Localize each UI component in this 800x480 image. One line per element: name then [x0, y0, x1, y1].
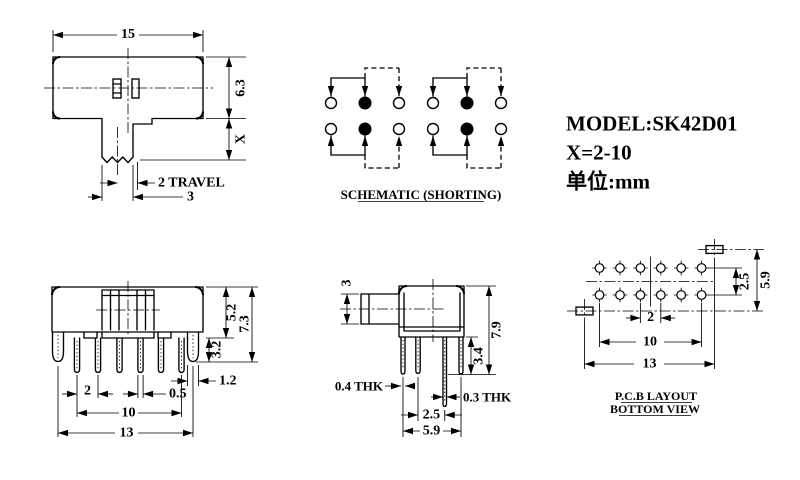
side-view: 3 7.9 3.4 0.4 THK 0.3 THK 2.5 5.9: [335, 279, 512, 439]
dim-top-width: 15: [121, 27, 135, 42]
dim-side-knob-height: 3: [340, 280, 355, 287]
switch-drawing: 15 6.3 X 2 TRAVEL 3: [0, 0, 800, 480]
dim-top-knob: 3: [187, 190, 194, 205]
actuator-slot: [113, 79, 139, 98]
dim-front-span: 10: [122, 406, 136, 421]
front-view-body: [52, 281, 203, 372]
pcb-caption-line1: P.C.B LAYOUT: [615, 389, 697, 403]
dim-top-height: 6.3: [234, 79, 249, 97]
dim-side-lug-pitch: 5.9: [423, 424, 441, 439]
base-standoffs: [84, 332, 171, 338]
dim-side-pin-length: 3.4: [472, 347, 487, 365]
dim-pcb-pad-span: 13: [643, 357, 657, 372]
title-block: MODEL:SK42D01 X=2-10 单位:mm: [566, 112, 738, 194]
x-range: X=2-10: [566, 141, 632, 165]
dim-front-total-height: 7.3: [238, 315, 253, 333]
dim-side-total-height: 7.9: [490, 321, 505, 339]
dim-pcb-hole-pitch: 2: [647, 310, 654, 325]
dim-front-lug-span: 13: [120, 426, 134, 441]
schematic-caption: SCHEMATIC (SHORTING): [341, 187, 502, 202]
pcb-caption-line2: BOTTOM VIEW: [610, 402, 700, 416]
pcb-pads: [567, 239, 764, 369]
dim-front-lug-width: 1.2: [219, 374, 237, 389]
schematic-view: SCHEMATIC (SHORTING): [326, 68, 507, 202]
side-centerlines: [340, 279, 445, 342]
dim-front-pin-length: 3.2: [210, 341, 225, 359]
top-view-dimensions: 15 6.3 X 2 TRAVEL 3: [53, 27, 249, 205]
schematic-contacts: [326, 97, 507, 135]
dim-front-pin-width: 0.5: [169, 387, 187, 402]
dim-front-pitch: 2: [84, 384, 91, 399]
top-view: 15 6.3 X 2 TRAVEL 3: [44, 27, 249, 205]
front-view: 5.2 7.3 3.2 1.2 2 0.5 10 13: [52, 281, 258, 441]
drawing-sheet: 15 6.3 X 2 TRAVEL 3: [0, 0, 800, 480]
units-note: 单位:mm: [566, 170, 650, 194]
terminal-pins: [74, 338, 184, 372]
dim-top-stem: X: [234, 134, 249, 144]
schematic-wires: [331, 68, 501, 168]
dim-side-row-pitch: 2.5: [423, 408, 441, 423]
dim-side-lug-thickness: 0.4 THK: [335, 379, 384, 394]
pcb-holes: [586, 257, 714, 307]
side-pins: [401, 337, 463, 407]
dim-pcb-row-pitch: 2.5: [738, 273, 753, 291]
dim-pcb-pad-pitch: 5.9: [759, 271, 774, 289]
model-number: MODEL:SK42D01: [566, 112, 738, 136]
pcb-view: 2.5 5.9 2 10 13 P.C.B LAYOUT BOTTOM VIEW: [567, 239, 774, 416]
top-view-body: [44, 48, 213, 177]
dim-pcb-hole-span: 10: [643, 335, 657, 350]
front-centerlines: [96, 281, 160, 336]
dim-top-travel: 2 TRAVEL: [158, 176, 225, 191]
centerlines: [44, 48, 213, 177]
dim-side-pin-thickness: 0.3 THK: [463, 390, 512, 405]
